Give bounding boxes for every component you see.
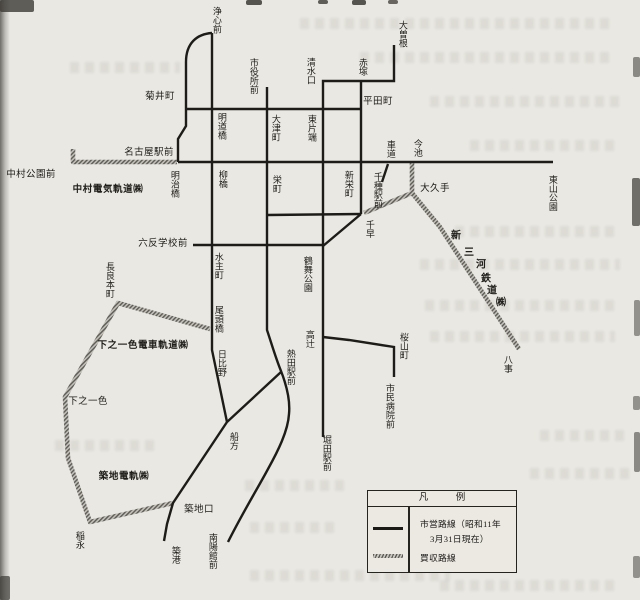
station-label: 尾頭橋 xyxy=(213,306,223,333)
station-label: 鶴舞公園 xyxy=(302,256,312,292)
station-label: 清水口 xyxy=(305,58,315,85)
company-label-char: 道 xyxy=(487,287,497,298)
station-label: 菊井町 xyxy=(145,92,175,102)
station-label: 南陽館前 xyxy=(207,533,217,569)
station-label: 中村公園前 xyxy=(6,170,56,180)
station-label: 大曽根 xyxy=(397,21,407,48)
legend-divider xyxy=(408,506,410,572)
legend-hatched-line-sample xyxy=(373,554,403,558)
station-label: 平田町 xyxy=(363,97,393,107)
station-label: 東片端 xyxy=(306,115,316,142)
station-label: 水主町 xyxy=(213,253,223,280)
station-label: 今池 xyxy=(412,139,422,157)
scanned-map-page: 浄心前菊井町市役所前清水口赤塚大曽根明道橋大津町東片端平田町車道今池名古屋駅前中… xyxy=(0,0,640,600)
company-label: 下之一色電車軌道㈱ xyxy=(98,341,189,351)
station-label: 八事 xyxy=(502,355,512,373)
legend-title: 凡 例 xyxy=(368,491,516,507)
legend-purchased-route-label: 買収路線 xyxy=(420,551,456,564)
legend-solid-line-sample xyxy=(373,527,403,530)
station-label: 名古屋駅前 xyxy=(124,148,174,158)
station-label: 新栄町 xyxy=(343,171,353,198)
station-label: 日比野 xyxy=(216,350,226,377)
company-label-char: 鉄 xyxy=(481,275,491,286)
company-label: 中村電気軌道㈱ xyxy=(73,185,144,195)
station-label: 浄心前 xyxy=(211,7,221,34)
station-label: 柳橋 xyxy=(217,170,227,188)
company-label: 築地電軌㈱ xyxy=(99,472,150,482)
station-label: 明治橋 xyxy=(169,171,179,198)
map-labels-layer: 浄心前菊井町市役所前清水口赤塚大曽根明道橋大津町東片端平田町車道今池名古屋駅前中… xyxy=(0,0,640,600)
station-label: 栄町 xyxy=(271,175,281,193)
station-label: 市役所前 xyxy=(248,58,258,94)
legend-box: 凡 例 市営路線（昭和11年 3月31日現在） 買収路線 xyxy=(367,490,517,573)
station-label: 明道橋 xyxy=(216,113,226,140)
station-label: 大久手 xyxy=(420,184,450,194)
station-label: 長良本町 xyxy=(104,262,114,298)
station-label: 築港 xyxy=(170,546,180,564)
station-label: 千早 xyxy=(364,220,374,238)
station-label: 車道 xyxy=(385,140,395,158)
station-label: 熱田駅前 xyxy=(285,349,295,385)
company-label-char: 新 xyxy=(451,232,461,243)
station-label: 築地口 xyxy=(184,505,214,515)
legend-municipal-route-label: 市営路線（昭和11年 xyxy=(420,517,501,530)
station-label: 大津町 xyxy=(270,115,280,142)
station-label: 東山公園 xyxy=(547,175,557,211)
station-label: 赤塚 xyxy=(357,58,367,76)
station-label: 堀田駅前 xyxy=(321,435,331,471)
station-label: 六反学校前 xyxy=(138,239,188,249)
station-label: 桜山町 xyxy=(398,333,408,360)
station-label: 下之一色 xyxy=(68,397,108,407)
station-label: 高辻 xyxy=(304,330,314,348)
station-label: 船方 xyxy=(228,432,238,450)
legend-municipal-route-label-2: 3月31日現在） xyxy=(430,532,489,545)
station-label: 千種駅前 xyxy=(372,172,382,208)
station-label: 稲永 xyxy=(74,531,84,549)
station-label: 市民病院前 xyxy=(384,384,394,429)
company-label-char: ㈱ xyxy=(496,299,506,310)
company-label-char: 河 xyxy=(476,261,486,272)
company-label-char: 三 xyxy=(464,249,474,260)
